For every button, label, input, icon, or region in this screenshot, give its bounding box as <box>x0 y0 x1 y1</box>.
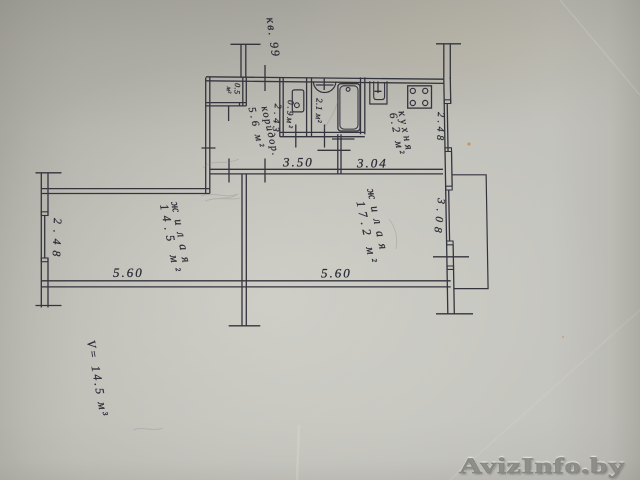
svg-text:кв. 99: кв. 99 <box>264 16 284 58</box>
svg-text:2.48: 2.48 <box>49 218 63 263</box>
svg-text:3.04: 3.04 <box>356 156 388 171</box>
svg-text:V= 14.5 м³: V= 14.5 м³ <box>84 339 111 419</box>
svg-text:коридор.: коридор. <box>259 105 281 158</box>
svg-text:0.5: 0.5 <box>232 83 242 95</box>
svg-text:жилая: жилая <box>364 187 392 258</box>
svg-text:2.48: 2.48 <box>434 112 446 144</box>
svg-text:0.9м²: 0.9м² <box>284 100 296 130</box>
svg-text:17.2 м²: 17.2 м² <box>354 200 382 268</box>
svg-text:м²: м² <box>225 85 233 94</box>
svg-text:3.50: 3.50 <box>282 155 314 170</box>
svg-text:жилая: жилая <box>168 200 195 271</box>
svg-text:5.6 м²: 5.6 м² <box>246 106 267 151</box>
svg-text:3.08: 3.08 <box>431 197 447 238</box>
svg-text:2.1 м²: 2.1 м² <box>314 98 325 123</box>
svg-text:5.60: 5.60 <box>113 265 144 280</box>
svg-text:6.2 м²: 6.2 м² <box>387 112 407 158</box>
svg-text:5.60: 5.60 <box>321 266 352 281</box>
svg-text:кухня: кухня <box>396 110 416 154</box>
svg-text:2.43: 2.43 <box>269 103 283 135</box>
svg-text:14.5 м²: 14.5 м² <box>157 203 185 278</box>
